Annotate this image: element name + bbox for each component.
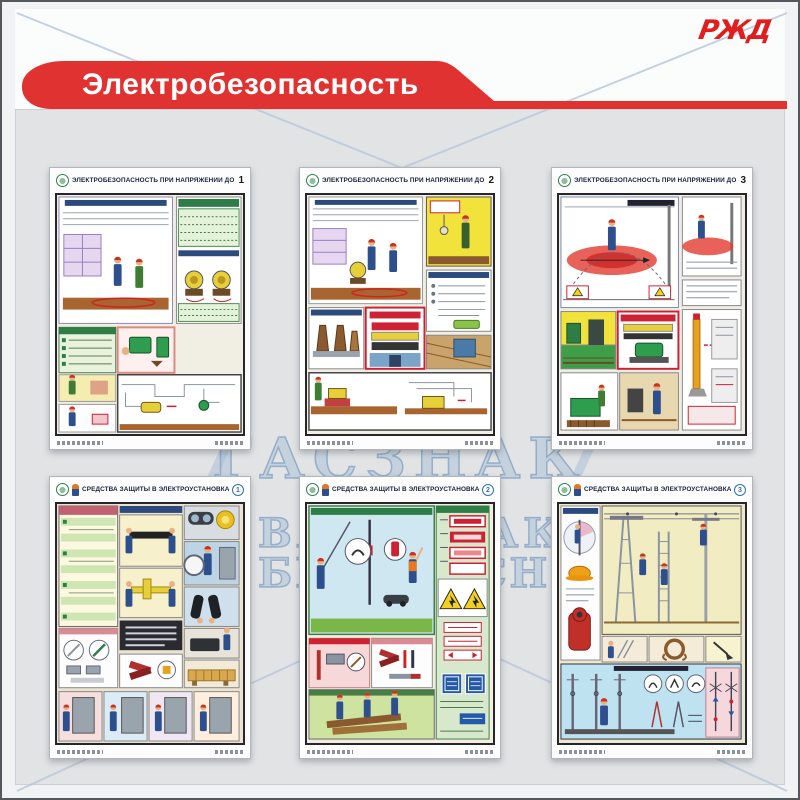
caption-smudge bbox=[307, 750, 353, 754]
poster-artwork bbox=[305, 193, 495, 436]
poster-number: 1 bbox=[232, 484, 244, 496]
poster-number: 2 bbox=[488, 175, 494, 186]
caption-smudge bbox=[717, 441, 745, 445]
stand-title: Электробезопасность bbox=[82, 64, 419, 106]
poster-number: 1 bbox=[238, 175, 244, 186]
poster-logo-icon bbox=[558, 174, 571, 187]
caption-smudge bbox=[215, 750, 243, 754]
caption-smudge bbox=[717, 750, 745, 754]
poster-number: 3 bbox=[734, 484, 746, 496]
caption-smudge bbox=[465, 750, 493, 754]
poster-art-5 bbox=[307, 504, 493, 743]
poster-number: 2 bbox=[482, 484, 494, 496]
poster-logo-icon bbox=[56, 174, 69, 187]
rzd-logo: РЖД bbox=[696, 15, 772, 46]
poster-art-1 bbox=[57, 195, 243, 434]
poster-title: ЭЛЕКТРОБЕЗОПАСНОСТЬ ПРИ НАПРЯЖЕНИИ ДО 10… bbox=[322, 177, 485, 184]
poster-logo-icon bbox=[306, 174, 319, 187]
poster-header: СРЕДСТВА ЗАЩИТЫ В ЭЛЕКТРОУСТАНОВКАХ 1 bbox=[50, 477, 250, 502]
poster-figure-icon bbox=[72, 484, 79, 496]
caption-smudge bbox=[465, 441, 493, 445]
poster-header: СРЕДСТВА ЗАЩИТЫ В ЭЛЕКТРОУСТАНОВКАХ 2 bbox=[300, 477, 500, 502]
poster-protection-1: СРЕДСТВА ЗАЩИТЫ В ЭЛЕКТРОУСТАНОВКАХ 1 bbox=[49, 476, 251, 759]
caption-smudge bbox=[57, 750, 103, 754]
poster-logo-icon bbox=[306, 483, 319, 496]
poster-artwork bbox=[557, 502, 747, 745]
poster-number: 3 bbox=[740, 175, 746, 186]
caption-smudge bbox=[57, 441, 103, 445]
poster-header: ЭЛЕКТРОБЕЗОПАСНОСТЬ ПРИ НАПРЯЖЕНИИ ДО 10… bbox=[300, 168, 500, 193]
poster-title: СРЕДСТВА ЗАЩИТЫ В ЭЛЕКТРОУСТАНОВКАХ bbox=[584, 486, 731, 493]
poster-artwork bbox=[55, 502, 245, 745]
poster-title: СРЕДСТВА ЗАЩИТЫ В ЭЛЕКТРОУСТАНОВКАХ bbox=[332, 486, 479, 493]
poster-header: ЭЛЕКТРОБЕЗОПАСНОСТЬ ПРИ НАПРЯЖЕНИИ ДО 10… bbox=[50, 168, 250, 193]
poster-protection-2: СРЕДСТВА ЗАЩИТЫ В ЭЛЕКТРОУСТАНОВКАХ 2 bbox=[299, 476, 501, 759]
poster-artwork bbox=[55, 193, 245, 436]
poster-electro-2: ЭЛЕКТРОБЕЗОПАСНОСТЬ ПРИ НАПРЯЖЕНИИ ДО 10… bbox=[299, 167, 501, 450]
poster-title: ЭЛЕКТРОБЕЗОПАСНОСТЬ ПРИ НАПРЯЖЕНИИ ДО 10… bbox=[72, 177, 235, 184]
poster-figure-icon bbox=[322, 484, 329, 496]
poster-electro-3: ЭЛЕКТРОБЕЗОПАСНОСТЬ ПРИ НАПРЯЖЕНИИ ДО 10… bbox=[551, 167, 753, 450]
poster-artwork bbox=[557, 193, 747, 436]
caption-smudge bbox=[559, 441, 605, 445]
poster-art-2 bbox=[307, 195, 493, 434]
poster-art-6 bbox=[559, 504, 745, 743]
poster-logo-icon bbox=[558, 483, 571, 496]
poster-electro-1: ЭЛЕКТРОБЕЗОПАСНОСТЬ ПРИ НАПРЯЖЕНИИ ДО 10… bbox=[49, 167, 251, 450]
caption-smudge bbox=[559, 750, 605, 754]
poster-art-4 bbox=[57, 504, 243, 743]
poster-header: ЭЛЕКТРОБЕЗОПАСНОСТЬ ПРИ НАПРЯЖЕНИИ ДО 10… bbox=[552, 168, 752, 193]
caption-smudge bbox=[215, 441, 243, 445]
poster-art-3 bbox=[559, 195, 745, 434]
poster-figure-icon bbox=[574, 484, 581, 496]
poster-title: СРЕДСТВА ЗАЩИТЫ В ЭЛЕКТРОУСТАНОВКАХ bbox=[82, 486, 229, 493]
caption-smudge bbox=[307, 441, 353, 445]
poster-artwork bbox=[305, 502, 495, 745]
safety-stand: ГАСЗНАК ВАШ ЗНАК БЕЗОПАСНОСТИ РЖД Электр… bbox=[0, 0, 800, 800]
poster-header: СРЕДСТВА ЗАЩИТЫ В ЭЛЕКТРОУСТАНОВКАХ 3 bbox=[552, 477, 752, 502]
poster-logo-icon bbox=[56, 483, 69, 496]
poster-title: ЭЛЕКТРОБЕЗОПАСНОСТЬ ПРИ НАПРЯЖЕНИИ ДО 10… bbox=[574, 177, 737, 184]
poster-protection-3: СРЕДСТВА ЗАЩИТЫ В ЭЛЕКТРОУСТАНОВКАХ 3 bbox=[551, 476, 753, 759]
